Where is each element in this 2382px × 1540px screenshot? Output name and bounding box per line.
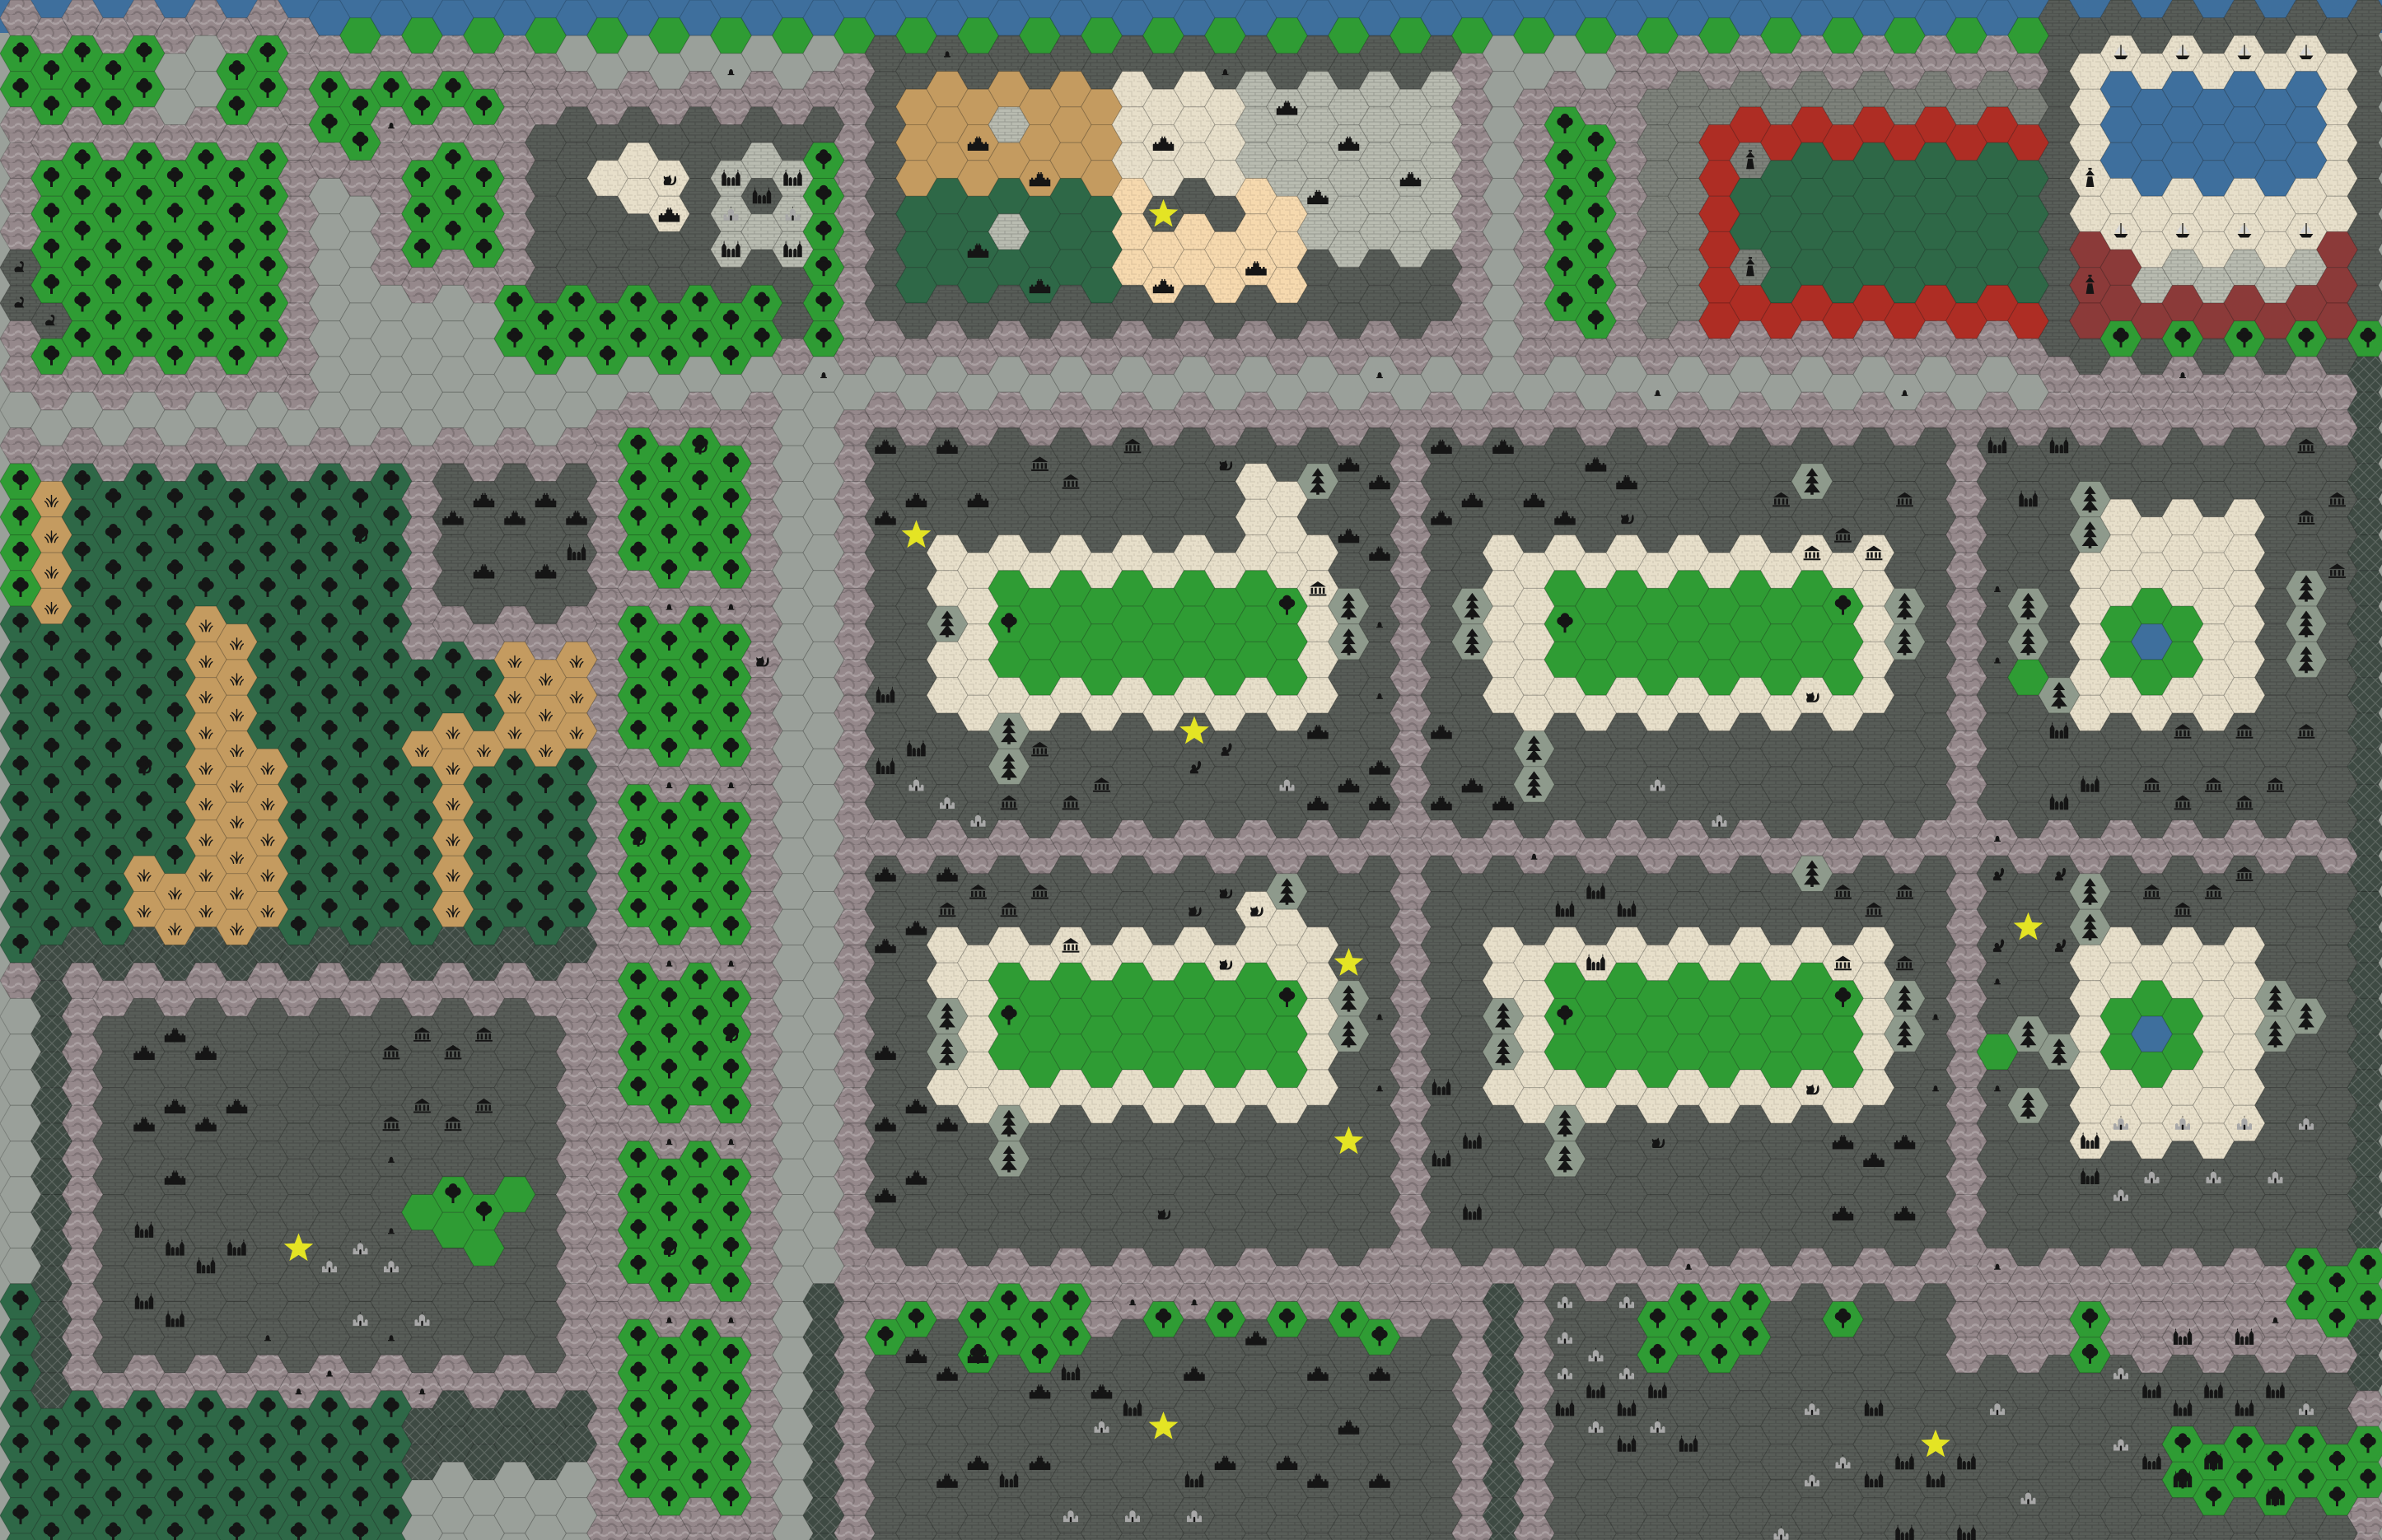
hex-map-canvas[interactable] <box>0 0 2382 1540</box>
hex-tile-layer <box>0 0 2382 1540</box>
hex-map-screenshot <box>0 0 2382 1540</box>
